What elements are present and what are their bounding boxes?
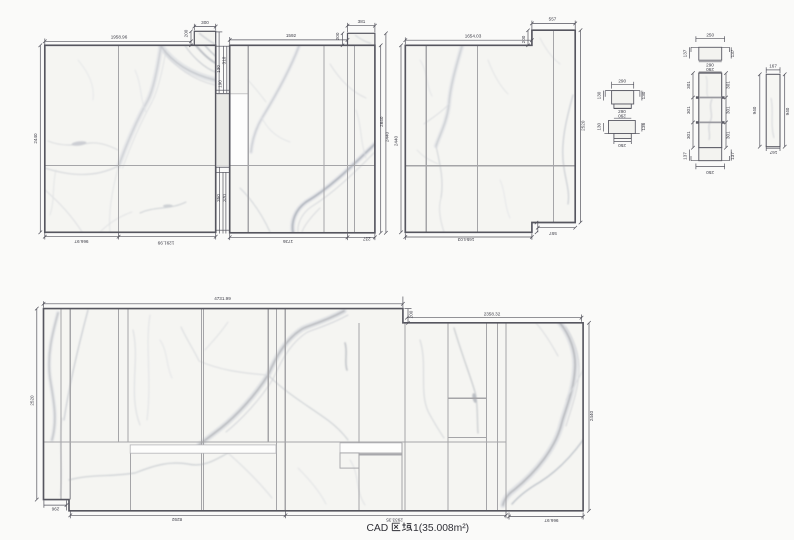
- svg-text:301: 301: [686, 131, 691, 139]
- svg-text:130: 130: [597, 122, 602, 130]
- svg-text:1(35.008m²): 1(35.008m²): [413, 523, 469, 534]
- svg-text:381: 381: [358, 19, 366, 24]
- svg-text:2440: 2440: [33, 133, 38, 144]
- svg-text:1592: 1592: [286, 33, 297, 38]
- svg-text:130: 130: [641, 91, 646, 99]
- svg-text:237: 237: [363, 237, 371, 242]
- svg-text:296: 296: [51, 506, 59, 511]
- svg-text:966.97: 966.97: [74, 239, 88, 244]
- svg-text:200: 200: [409, 310, 414, 318]
- svg-text:940: 940: [752, 106, 757, 114]
- svg-text:1654.03: 1654.03: [457, 237, 474, 242]
- svg-text:290: 290: [706, 67, 714, 72]
- svg-text:136: 136: [641, 122, 646, 130]
- svg-text:167: 167: [769, 64, 777, 69]
- svg-text:310: 310: [222, 56, 227, 64]
- svg-text:300: 300: [201, 20, 209, 25]
- svg-text:290: 290: [618, 109, 626, 114]
- svg-text:301: 301: [726, 106, 731, 114]
- svg-text:1736: 1736: [282, 239, 293, 244]
- svg-text:557: 557: [549, 17, 557, 22]
- svg-text:8292: 8292: [171, 517, 182, 522]
- svg-text:4731.99: 4731.99: [214, 296, 231, 301]
- svg-text:137: 137: [730, 49, 735, 57]
- svg-text:370: 370: [222, 194, 227, 202]
- svg-text:250: 250: [618, 143, 626, 148]
- svg-text:2640: 2640: [379, 116, 384, 127]
- svg-text:2440: 2440: [385, 131, 390, 142]
- svg-text:190: 190: [218, 80, 223, 88]
- svg-text:137: 137: [683, 49, 688, 57]
- svg-text:2520: 2520: [29, 395, 34, 406]
- svg-text:2933.35: 2933.35: [386, 518, 403, 523]
- svg-text:2440: 2440: [589, 410, 594, 421]
- svg-text:137: 137: [683, 152, 688, 160]
- svg-text:301: 301: [726, 81, 731, 89]
- svg-text:250: 250: [706, 170, 714, 175]
- svg-text:137: 137: [730, 152, 735, 160]
- svg-text:200: 200: [521, 35, 526, 43]
- svg-text:CAD: CAD: [367, 523, 389, 534]
- svg-text:2520: 2520: [580, 120, 585, 131]
- svg-text:350: 350: [216, 194, 221, 202]
- svg-text:301: 301: [686, 81, 691, 89]
- svg-text:250: 250: [706, 33, 714, 38]
- svg-text:200: 200: [335, 32, 340, 40]
- svg-text:130: 130: [216, 65, 221, 73]
- svg-text:557: 557: [549, 231, 557, 236]
- svg-text:2440: 2440: [394, 135, 399, 146]
- svg-text:290: 290: [618, 113, 626, 118]
- svg-text:301: 301: [726, 131, 731, 139]
- svg-text:1958.96: 1958.96: [111, 35, 128, 40]
- svg-text:2358.32: 2358.32: [484, 312, 501, 317]
- svg-text:1654.03: 1654.03: [465, 34, 482, 39]
- svg-text:940: 940: [785, 107, 790, 115]
- svg-text:301: 301: [686, 106, 691, 114]
- svg-text:966.97: 966.97: [544, 518, 558, 523]
- svg-text:1291.99: 1291.99: [157, 241, 174, 246]
- svg-text:200: 200: [184, 29, 189, 37]
- svg-text:290: 290: [618, 78, 626, 83]
- svg-text:167: 167: [769, 150, 777, 155]
- svg-text:130: 130: [597, 91, 602, 99]
